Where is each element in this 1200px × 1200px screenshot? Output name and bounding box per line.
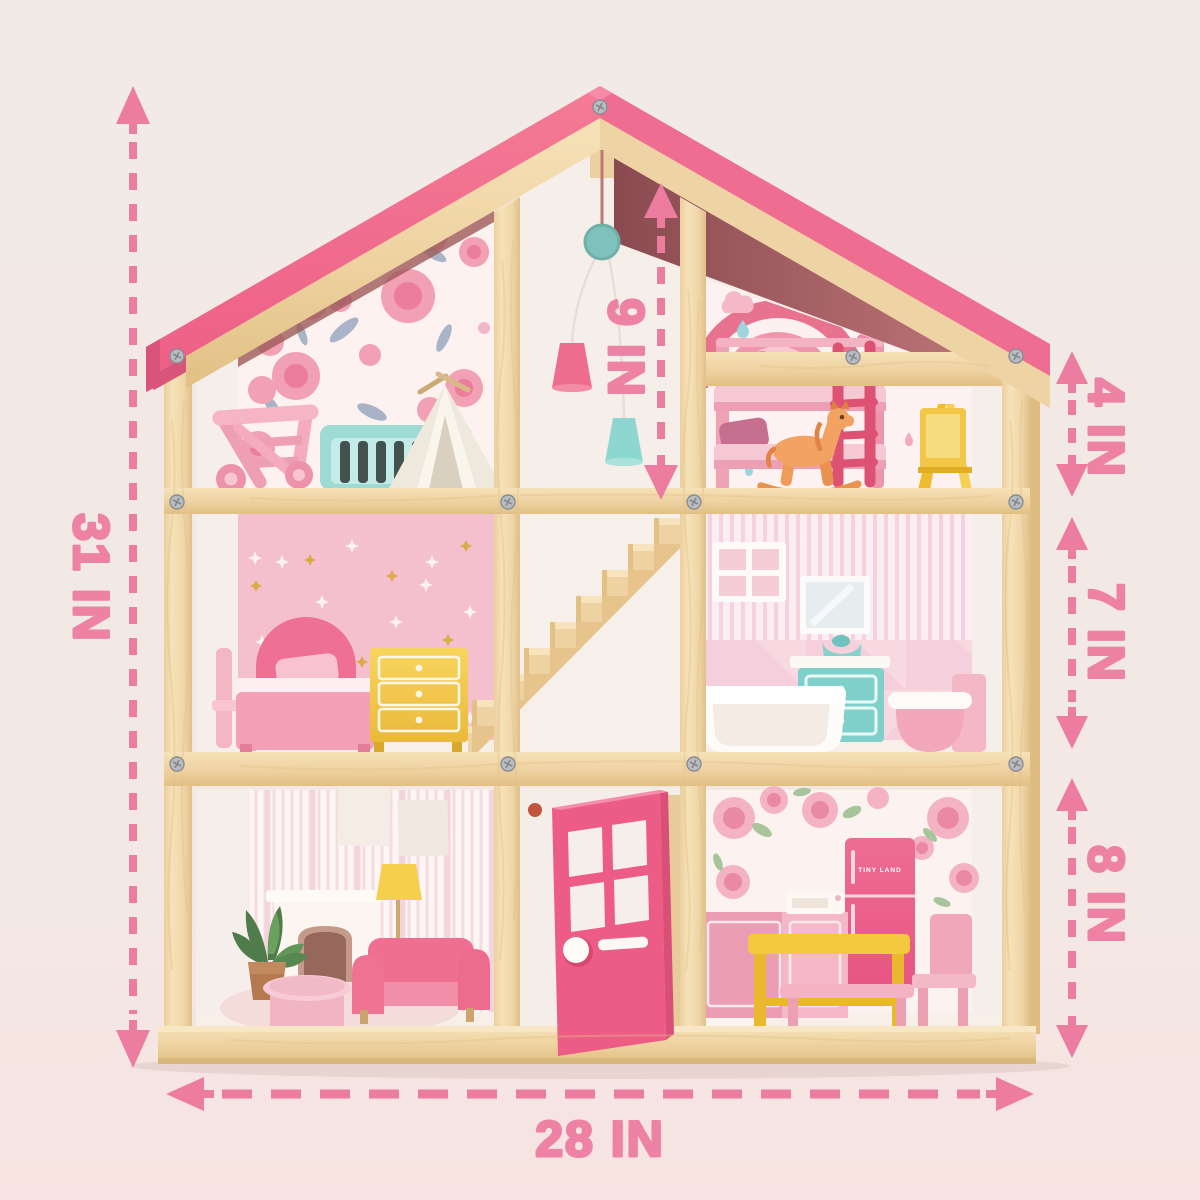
svg-text:9 IN: 9 IN <box>598 298 654 398</box>
svg-text:4 IN: 4 IN <box>1078 378 1134 478</box>
svg-text:31 IN: 31 IN <box>63 513 119 643</box>
svg-text:TINY LAND: TINY LAND <box>858 867 902 874</box>
svg-text:28 IN: 28 IN <box>535 1111 665 1167</box>
svg-text:8 IN: 8 IN <box>1078 845 1134 945</box>
svg-text:7 IN: 7 IN <box>1078 583 1134 683</box>
